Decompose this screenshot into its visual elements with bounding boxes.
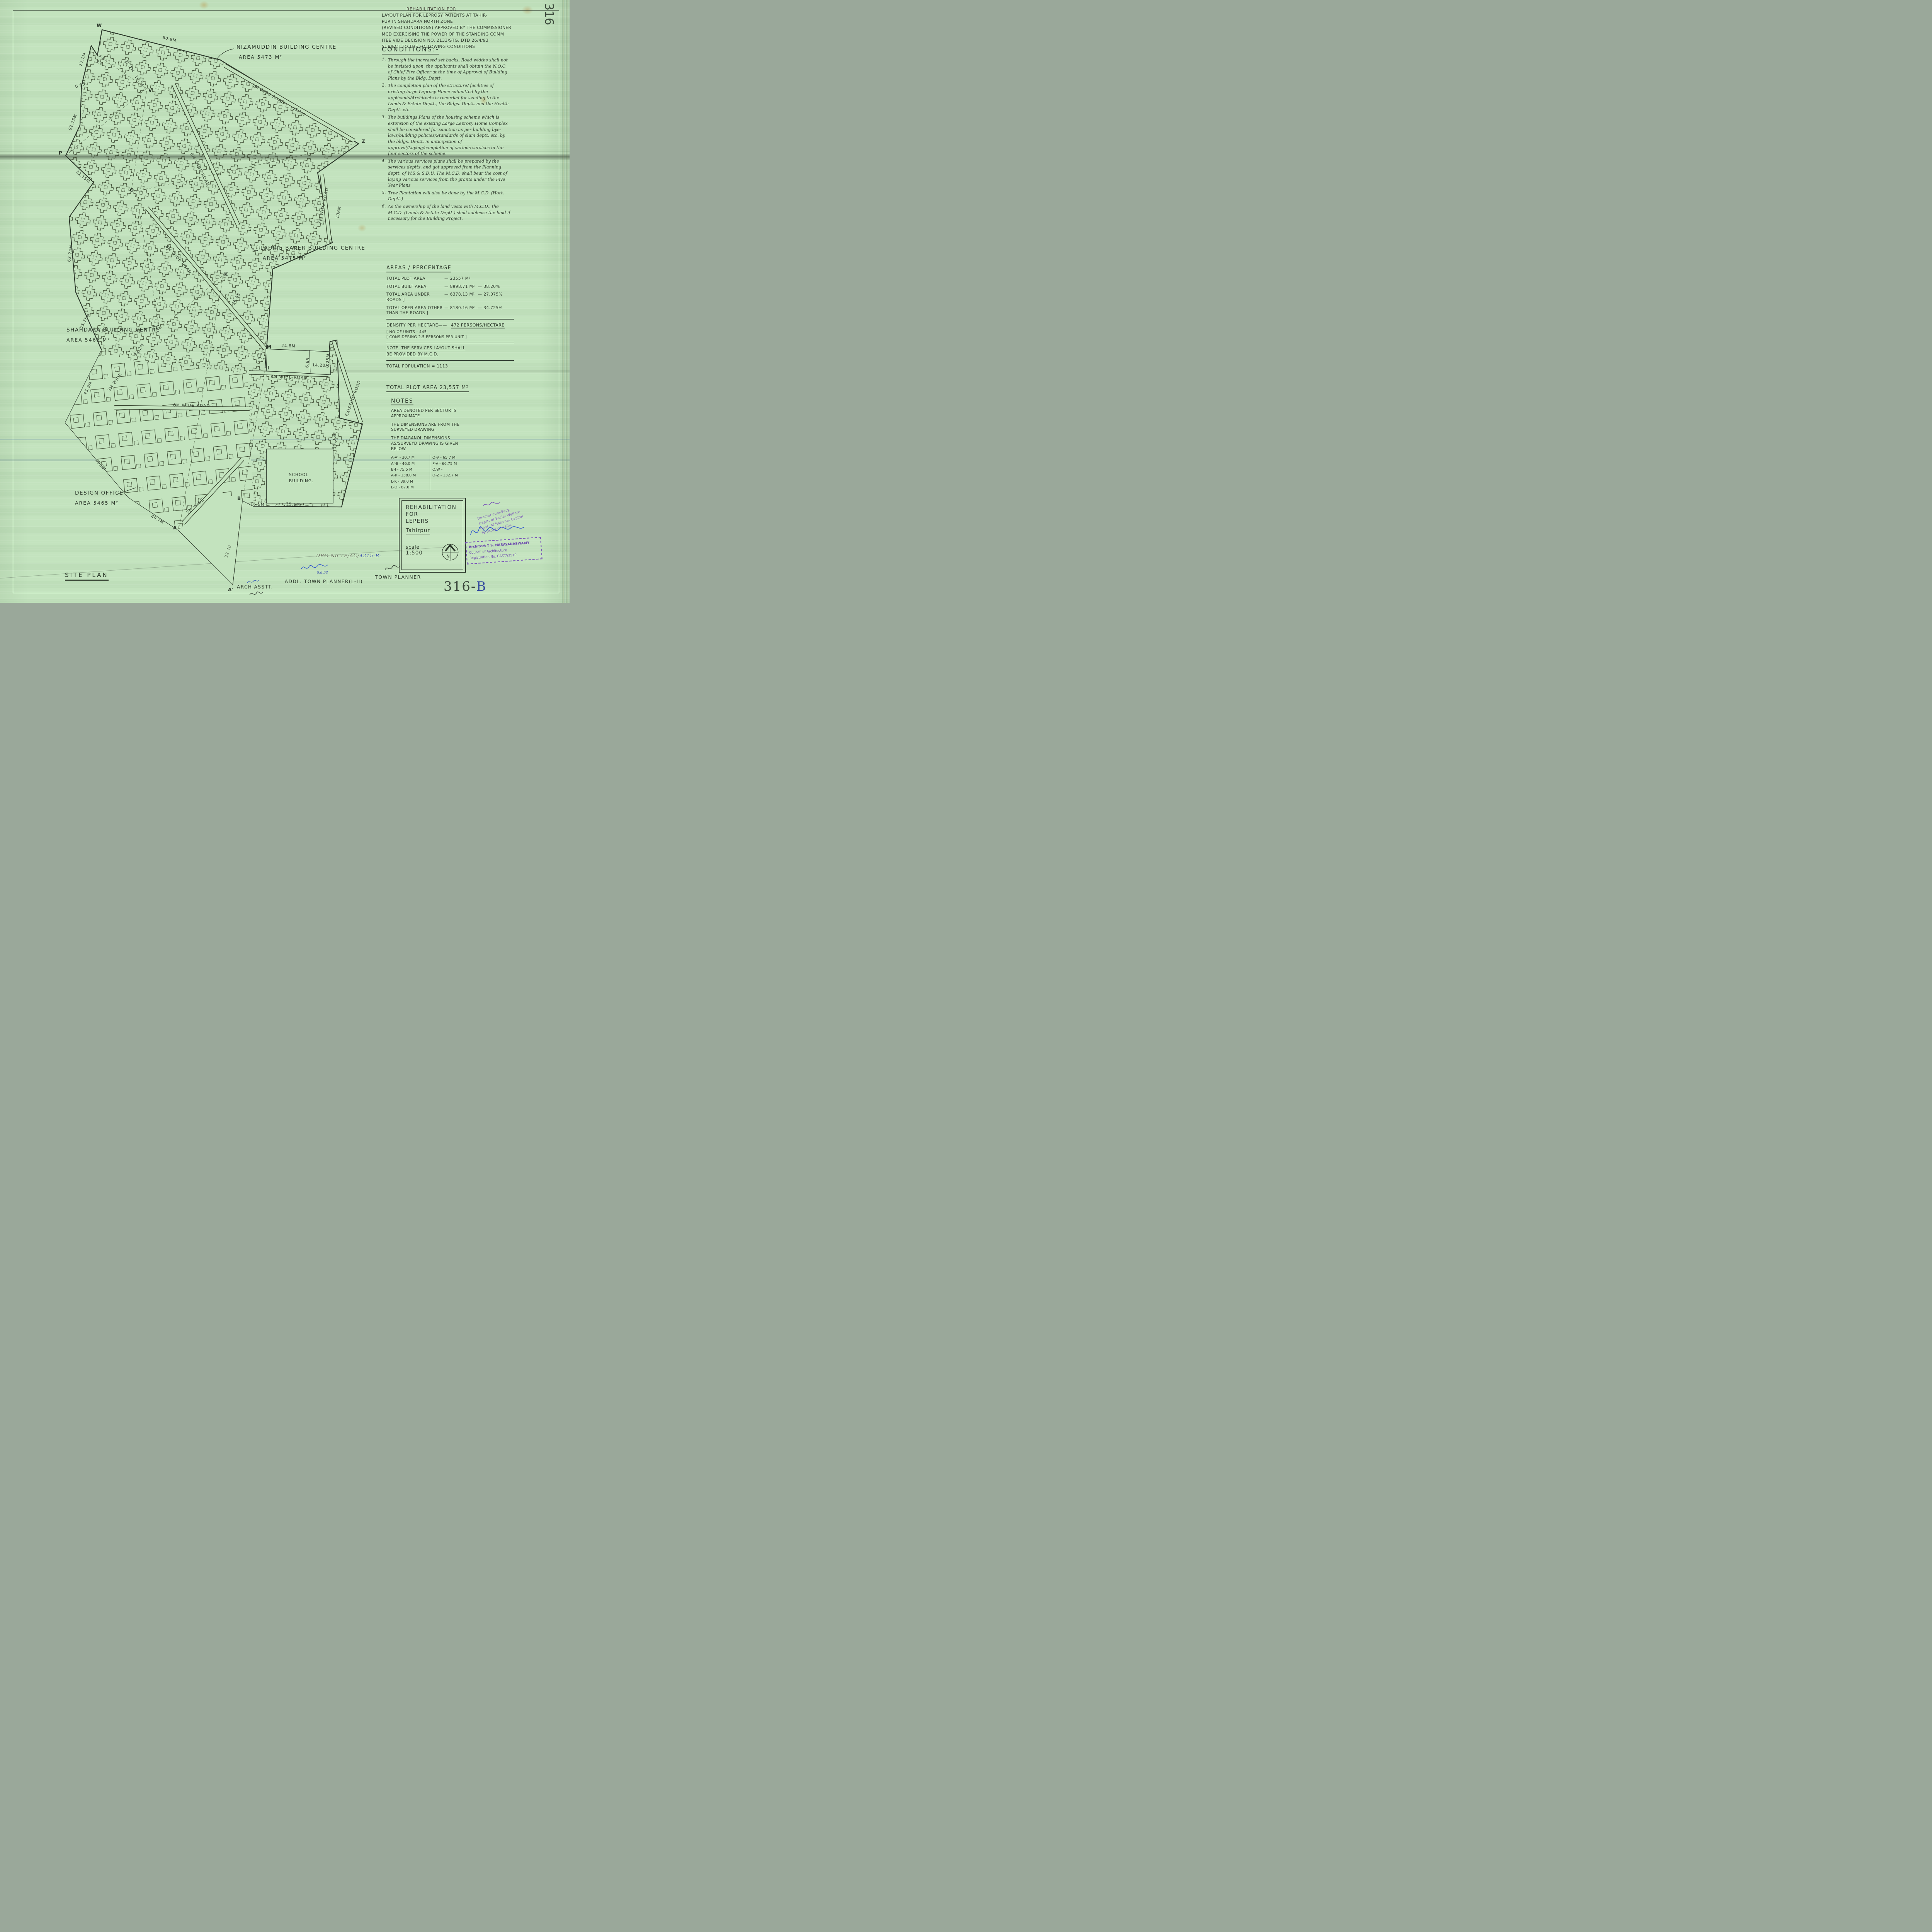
title-line: REHABILITATION [406,504,460,511]
svg-text:SHAHDARA BUILDING CENTRE: SHAHDARA BUILDING CENTRE [66,327,160,333]
sheet-number-edge: 316 [542,3,556,25]
note-para: THE DIMENSIONS ARE FROM THE SURVEYED DRA… [391,422,464,433]
svg-text:O: O [130,187,134,193]
areas-title: AREAS / PERCENTAGE [386,265,451,272]
drawing-sheet: SCHOOL BUILDING. 60.9M. 22.1M 10.75 27.2… [0,0,570,603]
svg-text:24.8M: 24.8M [281,344,296,349]
drawing-number: DRG No TP/AC/4215-B- [316,553,381,558]
layout-plan-note: LAYOUT PLAN FOR LEPROSY PATIENTS AT TAHI… [382,12,511,50]
condition-item: 2.The completion plan of the structure/ … [382,83,512,113]
svg-text:AREA 5466 M²: AREA 5466 M² [66,337,110,343]
svg-text:16.5M: 16.5M [250,502,265,507]
director-signature [483,502,500,506]
svg-text:AREA 5473 M²: AREA 5473 M² [239,54,282,60]
intro-line: LAYOUT PLAN FOR LEPROSY PATIENTS AT TAHI… [382,12,511,19]
svg-text:108M: 108M [335,206,342,219]
condition-item: 4.The various services plans shall be pr… [382,158,512,189]
signature-date: 5.6.93 [317,571,328,575]
town-planner-signature [385,565,400,570]
intro-line: ITEE VIDE DECISION NO. 2133/STG. DTD 26/… [382,37,511,44]
notes-title: NOTES [391,398,413,405]
svg-text:A: A [173,525,177,531]
sheet-number-corner: 316-B [444,579,486,594]
bela-scribble [247,580,259,583]
svg-text:59.35M: 59.35M [332,432,337,449]
units-note: [ NO OF UNITS - 445 [ CONSIDERING 2.5 PE… [386,330,514,340]
arch-asstt-scribble [250,592,263,595]
condition-item: 6.As the ownership of the land vests wit… [382,204,512,222]
condition-item: 1.Through the increased set backs, Road … [382,57,512,81]
conditions-list: 1.Through the increased set backs, Road … [382,57,512,223]
svg-text:V: V [148,88,152,93]
sheet-small-title: REHABILITATION FOR [406,5,456,12]
svg-text:AREA 5475 M²: AREA 5475 M² [263,255,306,261]
svg-text:6M WIDE ROAD: 6M WIDE ROAD [173,403,210,408]
total-population: TOTAL POPULATION = 1113 [386,364,514,369]
svg-text:K: K [224,272,228,277]
areas-row: TOTAL AREA UNDER ROADS ]6378.13 M²27.075… [386,292,514,303]
town-planner-label: TOWN PLANNER [375,574,421,580]
divider [386,360,514,361]
areas-row: TOTAL OPEN AREA OTHER THAN THE ROADS ]81… [386,306,514,316]
svg-text:A': A' [228,587,233,592]
divider [386,342,514,343]
khanna-signature [301,565,328,569]
school-label-line2: BUILDING. [289,479,313,483]
svg-text:27.2M: 27.2M [78,52,87,67]
north-arrow-icon: N [440,542,461,564]
divider [386,319,514,320]
svg-text:I: I [267,365,269,371]
svg-text:13.2: 13.2 [258,352,263,362]
title-block: REHABILITATION FOR LEPERS Tahirpur scale… [399,498,466,573]
svg-text:AREA 5465 M²: AREA 5465 M² [75,500,119,506]
note-para: THE DIAGANOL DIMENSIONS AS/SURVEYD DRAWI… [391,436,464,452]
areas-percentage-table: AREAS / PERCENTAGE TOTAL PLOT AREA23557 … [386,265,514,392]
svg-text:W: W [97,23,102,28]
intro-line: PUR IN SHAHDARA NORTH ZONE [382,19,511,25]
diagonal-dimensions: A-A' - 30.7 MA'-B - 46.0 MB-I - 75.5 M A… [391,455,464,490]
svg-text:P: P [59,150,62,156]
svg-text:Z: Z [362,139,365,144]
condition-item: 5.Tree Plantation will also be done by t… [382,190,512,202]
title-line: LEPERS [406,518,460,525]
svg-text:92.25M: 92.25M [68,114,78,131]
svg-text:M: M [267,344,271,350]
areas-row: TOTAL BUILT AREA8998.71 M²38.20% [386,284,514,290]
note-para: AREA DENOTED PER SECTOR IS APPROXIMATE [391,408,464,419]
svg-text:LAURIE BAKER BUILDING CENTRE: LAURIE BAKER BUILDING CENTRE [260,245,366,251]
svg-text:B: B [237,496,241,501]
svg-text:DESIGN OFFICE: DESIGN OFFICE [75,490,123,496]
svg-text:NIZAMUDDIN BUILDING CENTRE: NIZAMUDDIN BUILDING CENTRE [236,44,337,50]
density-row: DENSITY PER HECTARE——472 PERSONS/HECTARE [386,323,514,328]
svg-text:35.1M: 35.1M [286,502,300,507]
title-line: FOR [406,511,460,518]
addl-town-planner-label: ADDL. TOWN PLANNER(L-II) [285,579,363,584]
conditions-heading: CONDITIONS:- [382,46,439,54]
arch-asstt-label: ARCH ASSTT. [237,584,273,590]
condition-item: 3.The buildings Plans of the housing sch… [382,114,512,156]
road-junction-box [266,349,331,375]
svg-text:6.65: 6.65 [305,357,310,368]
school-label-line1: SCHOOL [289,473,308,477]
services-note: NOTE: THE SERVICES LAYOUT SHALL BE PROVI… [386,345,514,358]
site-plan-label: SITE PLAN [65,571,109,578]
intro-line: MCD EXERCISING THE POWER OF THE STANDING… [382,31,511,37]
svg-text:60.9M.: 60.9M. [162,35,178,43]
intro-line: (REVISED CONDITIONS) APPROVED BY THE COM… [382,25,511,31]
svg-text:N: N [446,553,450,559]
total-plot-area: TOTAL PLOT AREA 23,557 M² [386,385,469,392]
notes-block: NOTES AREA DENOTED PER SECTOR IS APPROXI… [391,398,464,490]
title-subtitle: Tahirpur [406,527,430,534]
title-block-inner: REHABILITATION FOR LEPERS Tahirpur scale… [401,500,463,570]
areas-row: TOTAL PLOT AREA23557 M² [386,276,514,282]
